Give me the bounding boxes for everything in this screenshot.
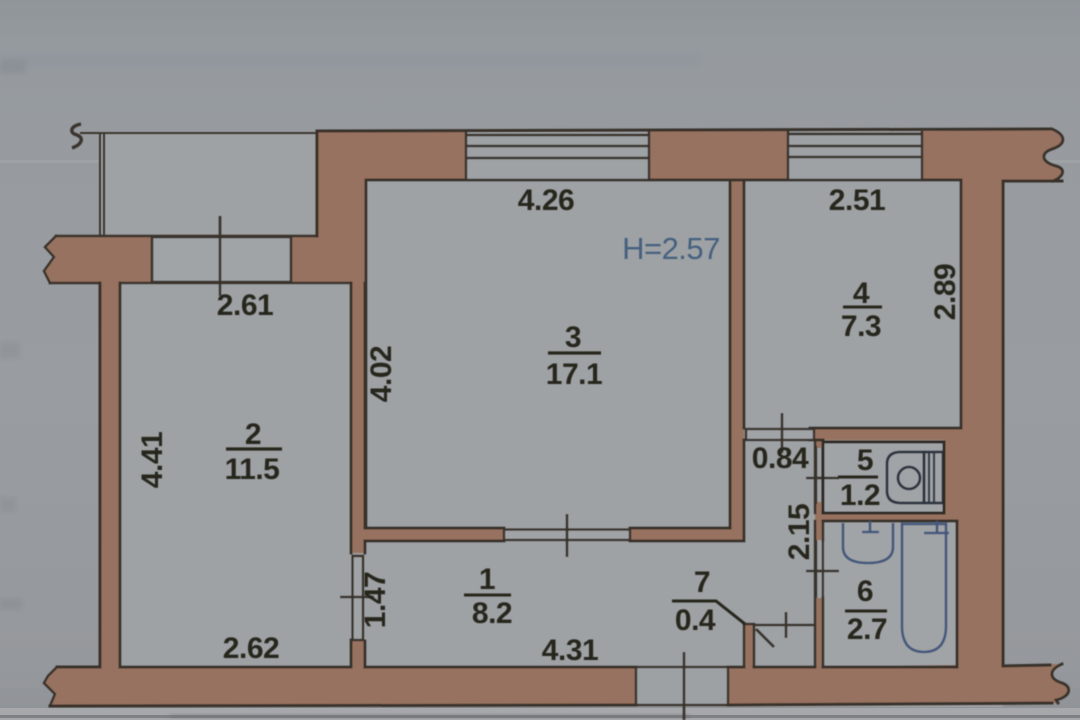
svg-text:17.1: 17.1 xyxy=(546,358,602,391)
svg-text:2.7: 2.7 xyxy=(847,613,887,646)
svg-text:7: 7 xyxy=(694,566,710,599)
svg-text:4.02: 4.02 xyxy=(365,346,398,402)
svg-text:1.2: 1.2 xyxy=(840,479,880,512)
svg-text:4: 4 xyxy=(853,277,870,310)
svg-text:8.2: 8.2 xyxy=(472,597,512,630)
svg-text:2: 2 xyxy=(245,418,261,451)
svg-text:5: 5 xyxy=(857,444,873,477)
svg-text:0.84: 0.84 xyxy=(752,442,809,475)
svg-text:6: 6 xyxy=(857,575,873,608)
svg-text:2.61: 2.61 xyxy=(217,289,273,322)
svg-text:4.31: 4.31 xyxy=(542,634,598,667)
svg-text:2.51: 2.51 xyxy=(829,184,885,217)
svg-text:2.15: 2.15 xyxy=(783,504,816,560)
svg-text:0.4: 0.4 xyxy=(675,604,716,637)
svg-text:3: 3 xyxy=(565,321,581,354)
svg-text:H=2.57: H=2.57 xyxy=(622,231,720,266)
svg-text:4.41: 4.41 xyxy=(136,432,169,488)
svg-text:4.26: 4.26 xyxy=(518,184,574,217)
svg-text:1.47: 1.47 xyxy=(359,572,392,628)
svg-text:11.5: 11.5 xyxy=(225,453,280,486)
svg-text:1: 1 xyxy=(479,563,495,596)
svg-text:7.3: 7.3 xyxy=(841,310,881,343)
svg-text:2.89: 2.89 xyxy=(929,264,962,320)
svg-text:2.62: 2.62 xyxy=(223,632,279,665)
